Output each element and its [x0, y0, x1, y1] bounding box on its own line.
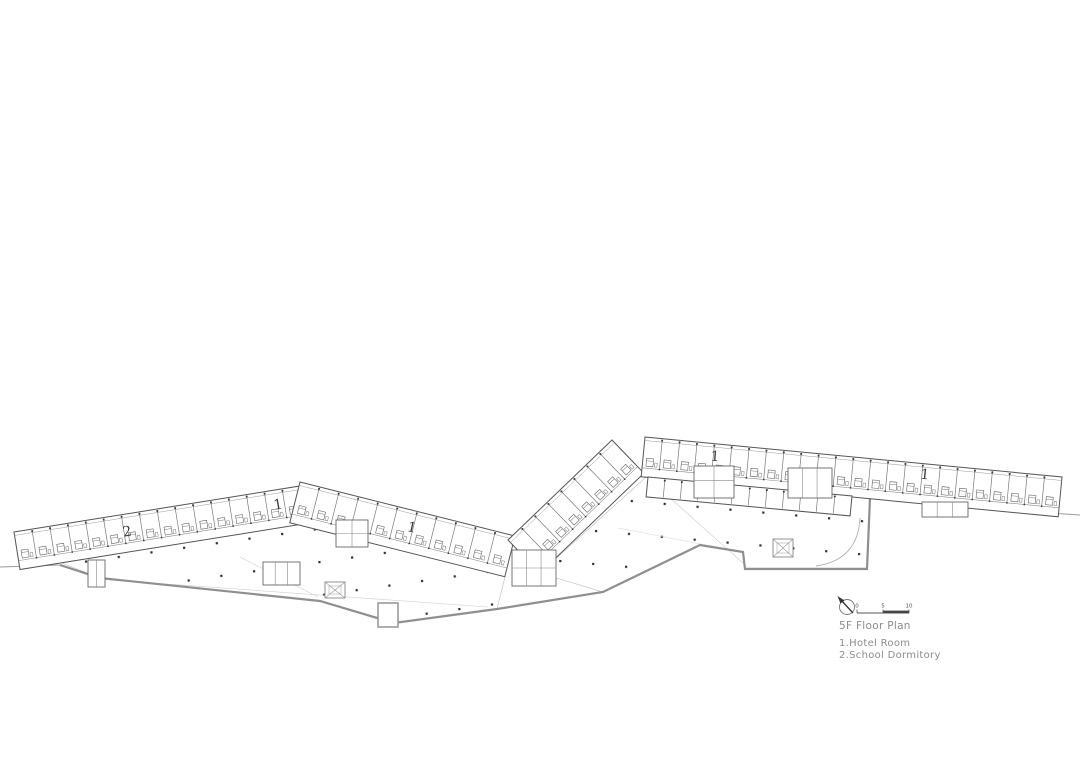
core-block: [336, 520, 368, 547]
legend: 1.Hotel Room 2.School Dormitory: [839, 638, 941, 661]
core-block: [512, 550, 556, 586]
scale-bar: 0 5 10: [855, 604, 913, 614]
legend-item-hotel-room: 1.Hotel Room: [839, 638, 941, 650]
core-block: [263, 562, 300, 585]
scale-tick-label-10: 10: [906, 604, 913, 610]
core-block: [694, 466, 734, 498]
core-block: [922, 502, 968, 517]
page: { "plan": { "title": "5F Floor Plan", "l…: [0, 0, 1080, 764]
plan-title: 5F Floor Plan: [839, 620, 911, 632]
skylight-hatch: [325, 582, 345, 598]
legend-item-school-dormitory: 2.School Dormitory: [839, 650, 941, 662]
north-needle: [841, 600, 853, 613]
core-block: [788, 468, 832, 498]
label-hotel-room-right-2: 1: [920, 467, 931, 484]
scale-tick-label-5: 5: [881, 604, 885, 610]
site-notch: [378, 603, 398, 627]
floor-plan-canvas: 2 1 1 1 1 0 5 10 5F Floor Plan 1.Hotel R…: [0, 0, 1080, 764]
core-block: [88, 560, 105, 587]
label-hotel-room-right-1: 1: [710, 449, 720, 466]
north-arrow-icon: [838, 596, 855, 615]
scale-bar-filled-segment: [883, 611, 909, 614]
scale-tick-label-0: 0: [855, 604, 859, 610]
skylight-hatch: [773, 539, 793, 557]
